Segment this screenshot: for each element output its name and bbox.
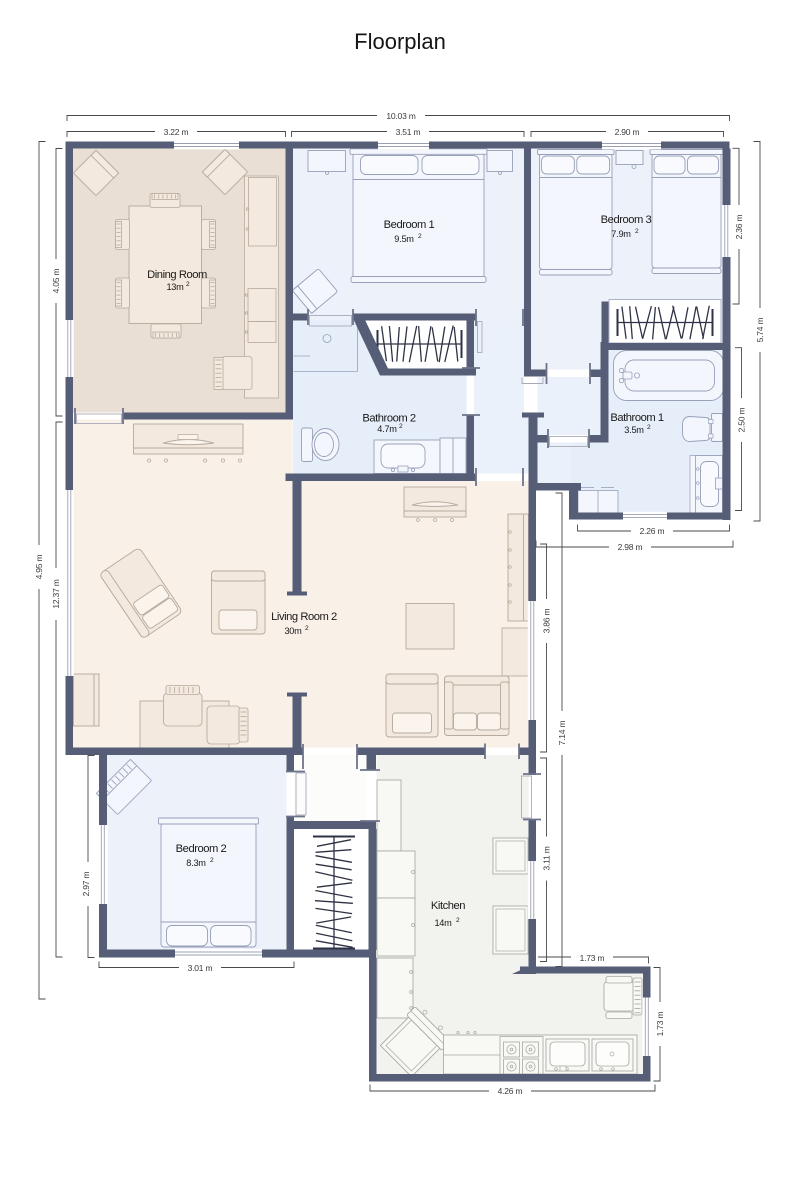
svg-text:2.98 m: 2.98 m — [618, 542, 643, 552]
svg-text:2: 2 — [647, 424, 651, 431]
svg-text:14m: 14m — [434, 918, 452, 928]
svg-text:3.11 m: 3.11 m — [542, 846, 552, 870]
svg-text:Dining Room: Dining Room — [147, 269, 207, 281]
svg-text:3.01 m: 3.01 m — [188, 963, 213, 973]
svg-text:7.9m: 7.9m — [611, 229, 631, 239]
svg-text:2: 2 — [186, 281, 190, 288]
svg-text:Living Room 2: Living Room 2 — [271, 611, 337, 623]
svg-text:10.03 m: 10.03 m — [386, 111, 415, 121]
svg-text:1.73 m: 1.73 m — [655, 1011, 665, 1036]
svg-text:2: 2 — [399, 423, 403, 430]
svg-text:Bedroom 1: Bedroom 1 — [384, 219, 435, 231]
svg-text:3.5m: 3.5m — [624, 425, 644, 435]
svg-text:4.26 m: 4.26 m — [498, 1086, 523, 1096]
svg-text:2.36 m: 2.36 m — [734, 214, 744, 239]
svg-text:Floorplan: Floorplan — [354, 29, 446, 54]
svg-text:2: 2 — [305, 625, 309, 632]
svg-text:Bedroom 3: Bedroom 3 — [601, 214, 652, 226]
svg-text:3.51 m: 3.51 m — [396, 127, 421, 137]
svg-text:30m: 30m — [284, 626, 302, 636]
svg-text:13m: 13m — [166, 282, 184, 292]
svg-text:2.97 m: 2.97 m — [81, 871, 91, 896]
svg-text:4.95 m: 4.95 m — [34, 554, 44, 579]
svg-text:5.74 m: 5.74 m — [755, 317, 765, 342]
svg-text:2.90 m: 2.90 m — [615, 127, 640, 137]
svg-text:7.14 m: 7.14 m — [557, 720, 567, 745]
svg-text:4.05 m: 4.05 m — [51, 268, 61, 293]
svg-text:12.37 m: 12.37 m — [51, 579, 61, 608]
svg-text:Kitchen: Kitchen — [431, 900, 465, 912]
svg-text:2: 2 — [418, 233, 422, 240]
svg-text:2.50 m: 2.50 m — [737, 407, 747, 432]
svg-text:9.5m: 9.5m — [394, 234, 414, 244]
svg-text:2: 2 — [456, 917, 460, 924]
svg-text:Bathroom 2: Bathroom 2 — [362, 413, 416, 425]
svg-text:Bedroom 2: Bedroom 2 — [176, 843, 227, 855]
svg-text:4.7m: 4.7m — [377, 424, 397, 434]
svg-text:2.26 m: 2.26 m — [640, 526, 665, 536]
svg-text:8.3m: 8.3m — [186, 858, 206, 868]
svg-text:2: 2 — [210, 857, 214, 864]
svg-text:1.73 m: 1.73 m — [580, 953, 605, 963]
svg-text:3.22 m: 3.22 m — [164, 127, 189, 137]
svg-text:Bathroom 1: Bathroom 1 — [610, 412, 664, 424]
svg-text:3.86 m: 3.86 m — [542, 608, 552, 633]
svg-text:2: 2 — [635, 228, 639, 235]
